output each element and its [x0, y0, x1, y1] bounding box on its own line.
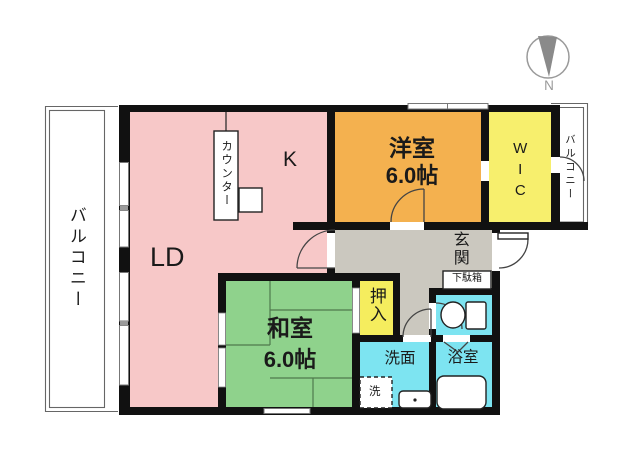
floor-plan: バルコニー バルコニー カウンター K LD 洋室 6.0帖 WIC 和室 6.…: [0, 0, 640, 455]
wall-japanese-top: [218, 273, 400, 281]
wic-label: WIC: [512, 140, 528, 203]
western-room-size-label: 6.0帖: [352, 164, 472, 187]
japanese-sliding-door-upper: [219, 313, 226, 345]
entrance-label: 玄関: [450, 231, 467, 267]
toilet-tank-icon: [466, 302, 486, 329]
bathtub-icon: [437, 376, 486, 409]
closet-sliding-door: [353, 288, 360, 333]
floor-plan-drawing: [0, 0, 640, 455]
japanese-sliding-door-lower: [219, 348, 226, 387]
closet-label: 押入: [367, 287, 385, 323]
wall-mid-horizontal: [293, 222, 588, 230]
wall-top: [119, 105, 560, 112]
ld-label: LD: [150, 243, 185, 271]
balcony-right-label: バルコニー: [564, 134, 575, 202]
compass-north-label: N: [541, 79, 557, 93]
counter-label: カウンター: [220, 140, 232, 208]
compass-icon: [527, 36, 569, 78]
wall-ld-hall-lower: [327, 268, 335, 281]
kitchen-label: K: [283, 149, 297, 171]
japanese-room-label: 和室: [230, 316, 350, 340]
wall-kitchen-western: [327, 105, 335, 233]
entrance-door-arc: [499, 239, 528, 268]
entrance-door-leaf: [498, 233, 528, 239]
wall-closet-right: [393, 276, 400, 342]
washbasin-drain-icon: [413, 398, 416, 401]
japanese-room-size-label: 6.0帖: [230, 348, 350, 371]
bathroom-label: 浴室: [438, 350, 488, 366]
kitchen-sink-unit: [239, 188, 262, 212]
washing-machine-label: 洗: [369, 386, 381, 398]
toilet-bowl-icon: [441, 302, 465, 328]
balcony-left-label: バルコニー: [67, 206, 85, 311]
shoe-cabinet-label: 下駄箱: [443, 274, 491, 285]
room-japanese-fill: [222, 277, 358, 407]
room-ld-lower-fill: [130, 273, 222, 407]
japanese-room-window: [264, 409, 310, 414]
western-room-label: 洋室: [352, 136, 472, 160]
washroom-label: 洗面: [376, 351, 424, 367]
